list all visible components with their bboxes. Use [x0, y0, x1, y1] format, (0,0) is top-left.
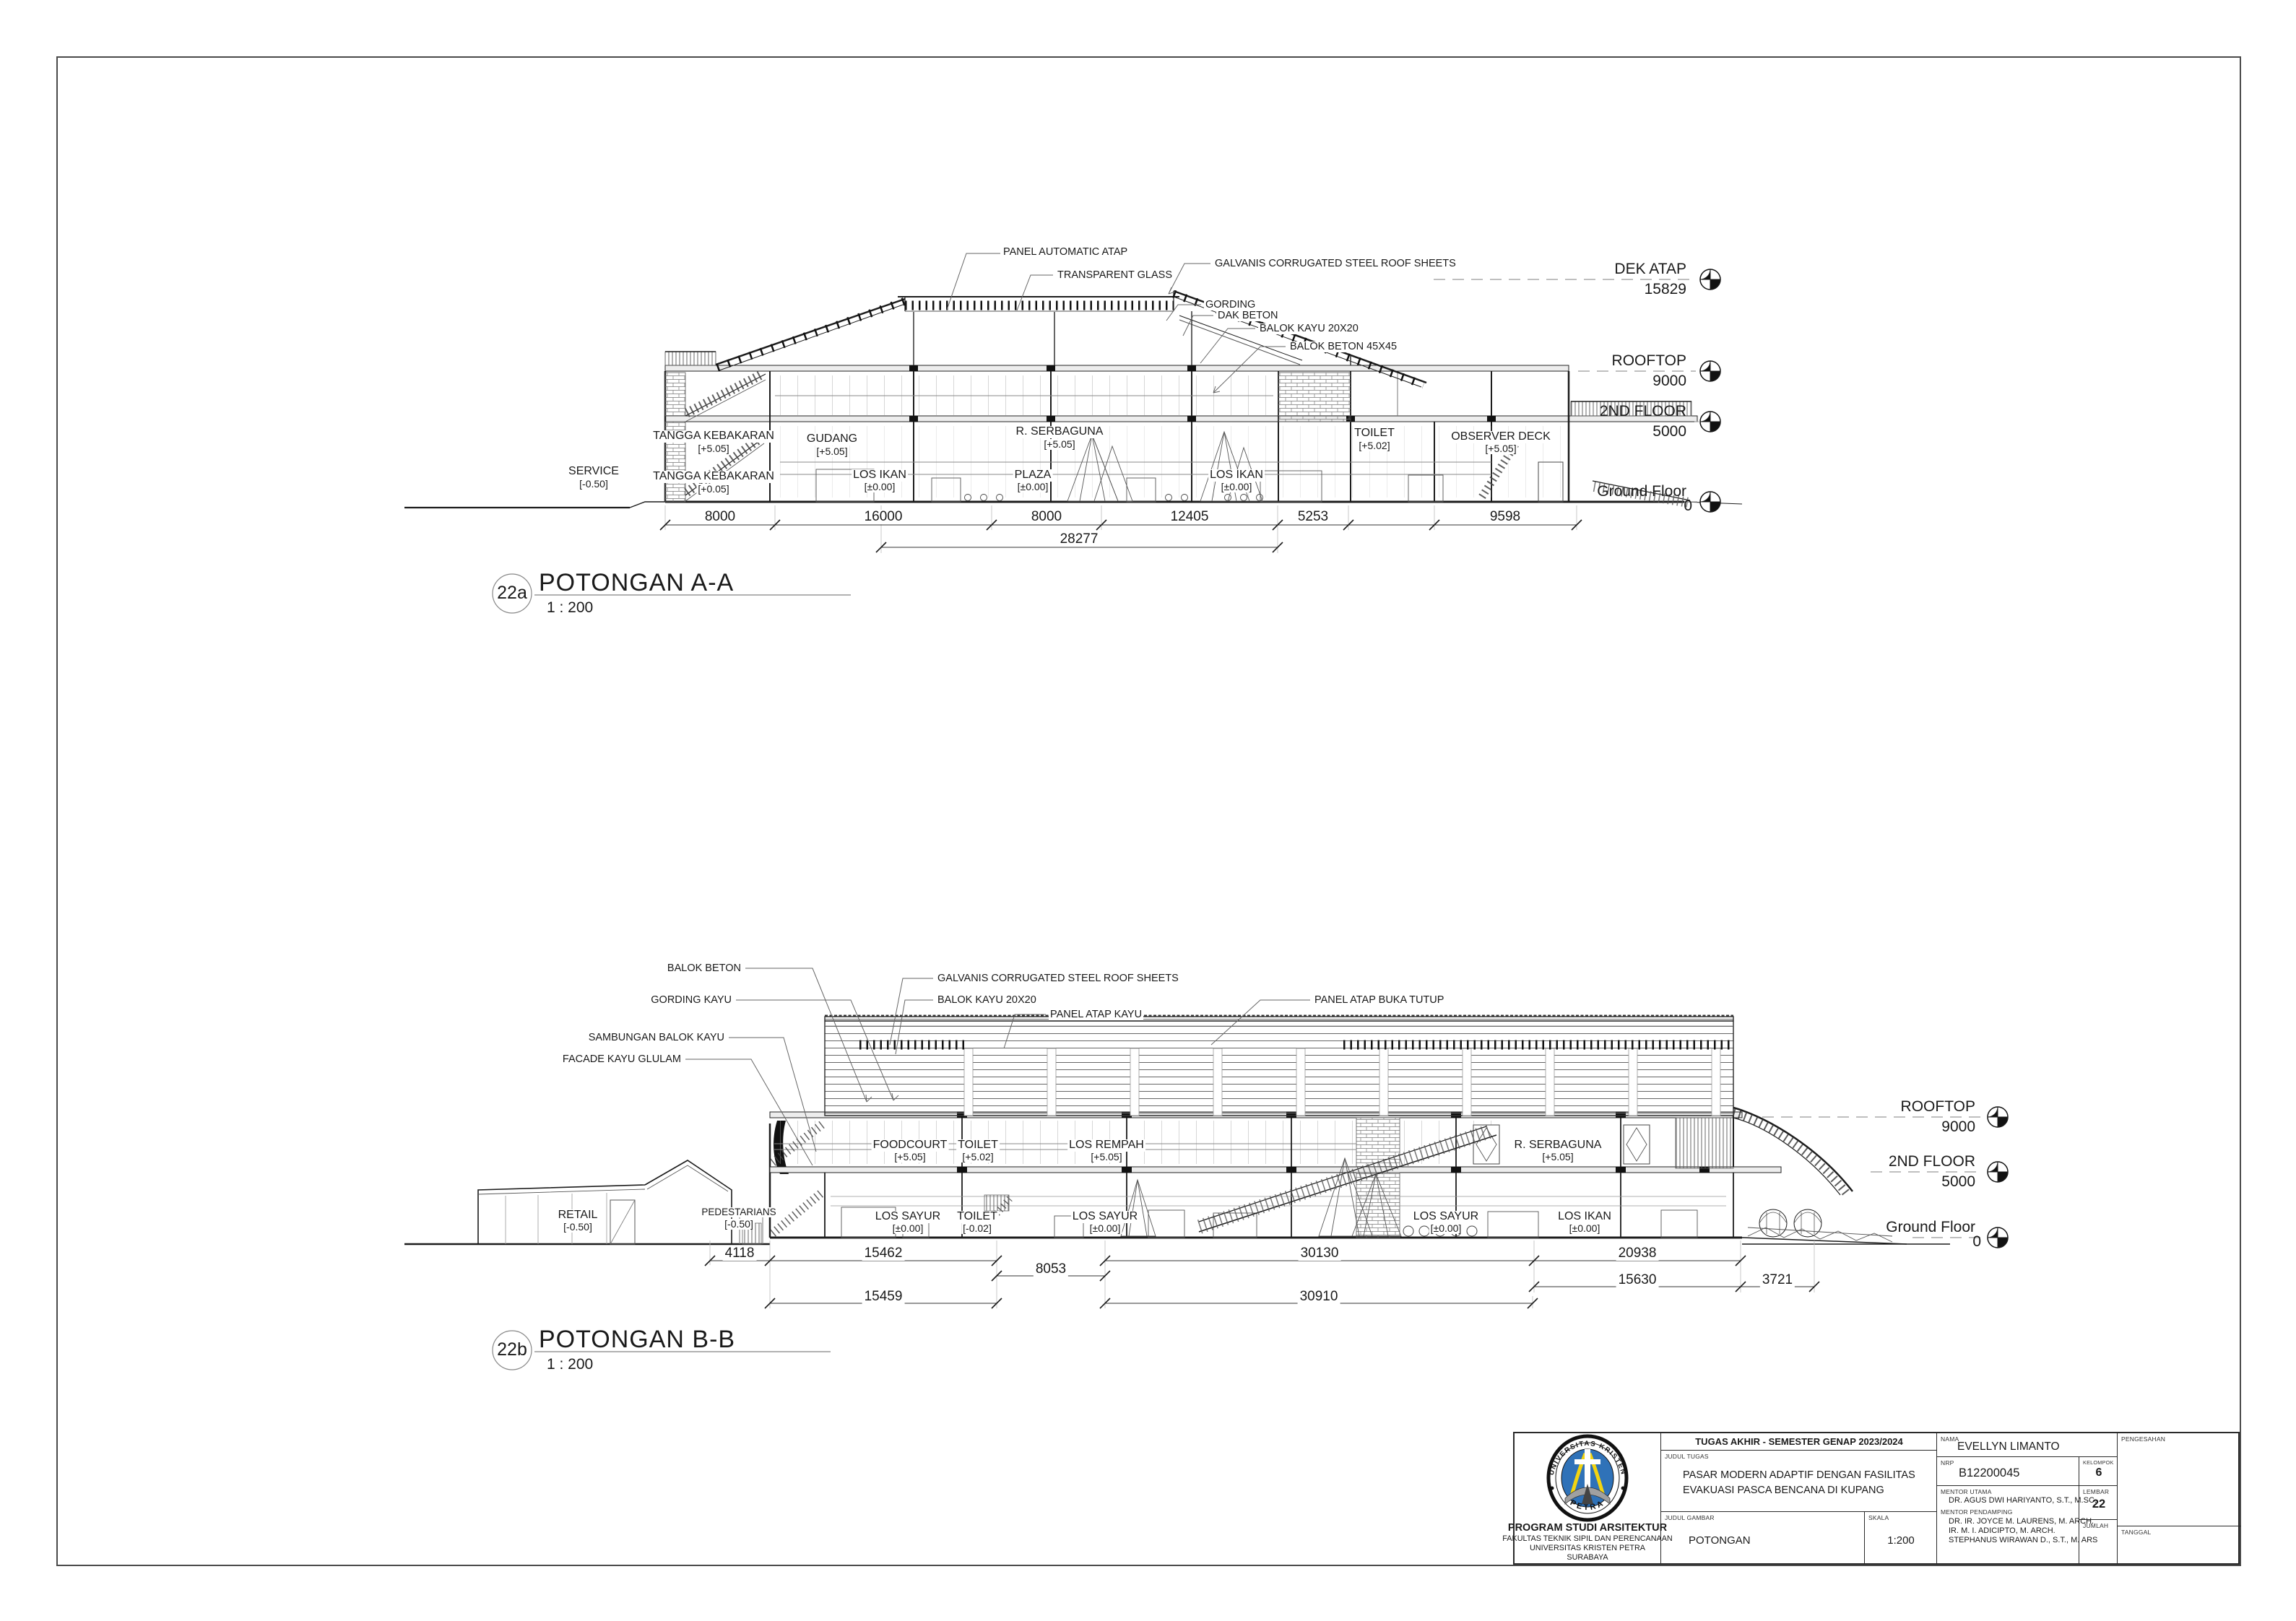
mentor-pendamping-3: STEPHANUS WIRAWAN D., S.T., M. ARS	[1949, 1537, 2097, 1545]
judul-gambar-label: JUDUL GAMBAR	[1665, 1514, 1715, 1521]
title-block-skala: SKALA 1:200	[1865, 1512, 1937, 1563]
drawing-title-bb: POTONGAN B-B	[539, 1327, 735, 1353]
title-block: UNIVERSITAS KRISTEN PETRA PROGRAM STUDI …	[1513, 1432, 2240, 1565]
nrp-value: B12200045	[1959, 1467, 2019, 1479]
room-level: [-0.02]	[961, 1223, 993, 1234]
title-block-nama: NAMA EVELLYN LIMANTO	[1937, 1433, 2118, 1457]
level-name: ROOFTOP	[1612, 353, 1686, 369]
callout-gording: GORDING	[1204, 300, 1257, 310]
level-name: Ground Floor	[1886, 1220, 1975, 1235]
title-block-institution: UNIVERSITAS KRISTEN PETRA PROGRAM STUDI …	[1515, 1433, 1661, 1563]
dim: 4118	[723, 1246, 757, 1261]
drawing-id-aa: 22a	[497, 583, 527, 602]
room-level: [+5.05]	[1483, 443, 1517, 454]
callout-balok-kayu: BALOK KAYU 20X20	[1258, 323, 1360, 334]
header-text: TUGAS AKHIR - SEMESTER GENAP 2023/2024	[1695, 1437, 1903, 1447]
judul-tugas-label: JUDUL TUGAS	[1665, 1453, 1709, 1460]
room-level: [+5.05]	[696, 443, 730, 454]
room-level: [+5.05]	[815, 446, 849, 457]
callout-galvanis-roof: GALVANIS CORRUGATED STEEL ROOF SHEETS	[936, 973, 1180, 984]
room-label: OBSERVER DECK	[1450, 431, 1552, 443]
callout-balok-beton-45: BALOK BETON 45X45	[1288, 342, 1398, 352]
title-block-tanggal: TANGGAL	[2118, 1526, 2241, 1563]
room-label: LOS REMPAH	[1067, 1139, 1145, 1152]
room-level: [+0.05]	[696, 484, 730, 495]
skala-label: SKALA	[1868, 1514, 1889, 1521]
dim: 3721	[1760, 1273, 1795, 1287]
mentor-pendamping-2: IR. M. I. ADICIPTO, M. ARCH.	[1949, 1527, 2055, 1536]
section-drawings-linework	[0, 0, 2296, 1621]
university-logo: UNIVERSITAS KRISTEN PETRA	[1515, 1433, 1661, 1524]
dim: 8000	[1029, 510, 1064, 524]
room-level: [-0.50]	[562, 1222, 594, 1233]
callout-transparent-glass: TRANSPARENT GLASS	[1056, 270, 1174, 281]
title-block-lembar: LEMBAR 22	[2079, 1486, 2118, 1519]
nama-value: EVELLYN LIMANTO	[1957, 1441, 2060, 1453]
level-value: 9000	[1941, 1119, 1975, 1135]
room-label: LOS IKAN	[1208, 469, 1265, 482]
room-level: [+5.05]	[1042, 439, 1076, 450]
kelompok-label: KELOMPOK	[2083, 1459, 2114, 1466]
drawing-scale-aa: 1 : 200	[547, 600, 593, 616]
level-value: 0	[1972, 1234, 1981, 1250]
mentor-pendamping-label: MENTOR PENDAMPING	[1941, 1508, 2013, 1516]
level-value: 5000	[1941, 1174, 1975, 1190]
drawing-sheet: PANEL AUTOMATIC ATAP TRANSPARENT GLASS G…	[0, 0, 2296, 1621]
level-value: 15829	[1645, 282, 1686, 297]
dim-total: 28277	[1058, 532, 1101, 547]
callout-galvanis-roof: GALVANIS CORRUGATED STEEL ROOF SHEETS	[1213, 258, 1457, 269]
title-block-judul-gambar: JUDUL GAMBAR POTONGAN	[1661, 1512, 1865, 1563]
room-label: TOILET	[1353, 427, 1396, 440]
dim: 15462	[862, 1246, 905, 1261]
room-level: [±0.00]	[891, 1223, 925, 1234]
level-name: Ground Floor	[1597, 484, 1686, 500]
room-label: LOS SAYUR	[1071, 1211, 1139, 1223]
pengesahan-label: PENGESAHAN	[2121, 1435, 2165, 1443]
room-level: [+5.02]	[1357, 440, 1391, 451]
room-label: SERVICE	[567, 466, 620, 478]
room-level: [+5.05]	[893, 1152, 927, 1162]
room-label: LOS SAYUR	[874, 1211, 942, 1223]
callout-gording-kayu: GORDING KAYU	[649, 995, 733, 1006]
callout-facade-glulam: FACADE KAYU GLULAM	[561, 1054, 683, 1065]
room-level: [+5.02]	[961, 1152, 995, 1162]
room-level: [±0.00]	[1220, 482, 1254, 492]
room-level: [±0.00]	[1088, 1223, 1122, 1234]
room-label: R. SERBAGUNA	[1513, 1139, 1603, 1152]
room-level: [±0.00]	[863, 482, 897, 492]
room-label: PEDESTARIANS	[700, 1207, 777, 1217]
room-level: [-0.50]	[723, 1219, 755, 1230]
dim: 12405	[1169, 510, 1211, 524]
title-block-jumlah: JUMLAH	[2079, 1519, 2118, 1563]
callout-dak-beton: DAK BETON	[1216, 310, 1280, 321]
dim: 5253	[1296, 510, 1330, 524]
jumlah-label: JUMLAH	[2083, 1522, 2108, 1529]
dim: 9598	[1488, 510, 1522, 524]
callout-balok-beton: BALOK BETON	[666, 963, 742, 974]
mentor-utama-value: DR. AGUS DWI HARIYANTO, S.T., M.SC.	[1949, 1497, 2097, 1505]
dim: 16000	[862, 510, 905, 524]
callout-balok-kayu: BALOK KAYU 20X20	[936, 995, 1038, 1006]
dim: 8000	[703, 510, 737, 524]
title-block-nrp: NRP B12200045	[1937, 1457, 2079, 1486]
mentor-pendamping-1: DR. IR. JOYCE M. LAURENS, M. ARCH.	[1949, 1518, 2094, 1526]
nama-label: NAMA	[1941, 1435, 1959, 1443]
judul-tugas-line2: EVAKUASI PASCA BENCANA DI KUPANG	[1683, 1485, 1884, 1496]
drawing-scale-bb: 1 : 200	[547, 1357, 593, 1373]
skala-value: 1:200	[1887, 1535, 1915, 1547]
kelompok-value: 6	[2096, 1467, 2102, 1479]
callout-panel-atap-kayu: PANEL ATAP KAYU	[1049, 1009, 1143, 1020]
lembar-value: 22	[2092, 1498, 2105, 1511]
drawing-id-bb: 22b	[497, 1340, 527, 1359]
nrp-label: NRP	[1941, 1459, 1954, 1466]
room-level: [+5.05]	[1089, 1152, 1123, 1162]
tanggal-label: TANGGAL	[2121, 1529, 2151, 1536]
callout-panel-atap-buka-tutup: PANEL ATAP BUKA TUTUP	[1313, 995, 1445, 1006]
room-level: [±0.00]	[1429, 1223, 1463, 1234]
room-label: R. SERBAGUNA	[1015, 426, 1105, 438]
room-label: RETAIL	[557, 1209, 599, 1222]
title-block-pengesahan: PENGESAHAN	[2118, 1433, 2241, 1526]
dim: 8053	[1034, 1262, 1068, 1277]
callout-sambungan-balok: SAMBUNGAN BALOK KAYU	[587, 1033, 726, 1043]
room-level: [±0.00]	[1568, 1223, 1602, 1234]
institution-faculty: FAKULTAS TEKNIK SIPIL DAN PERENCANAAN	[1502, 1535, 1672, 1543]
judul-tugas-line1: PASAR MODERN ADAPTIF DENGAN FASILITAS	[1683, 1470, 1915, 1481]
title-block-kelompok: KELOMPOK 6	[2079, 1457, 2118, 1486]
level-name: DEK ATAP	[1614, 261, 1686, 277]
room-label: TOILET	[956, 1211, 999, 1223]
title-block-header: TUGAS AKHIR - SEMESTER GENAP 2023/2024	[1661, 1433, 1937, 1451]
title-block-judul-tugas: JUDUL TUGAS PASAR MODERN ADAPTIF DENGAN …	[1661, 1451, 1937, 1512]
level-name: 2ND FLOOR	[1889, 1154, 1975, 1170]
level-value: 5000	[1652, 424, 1686, 440]
room-level: [-0.50]	[578, 479, 610, 490]
level-name: 2ND FLOOR	[1600, 404, 1686, 420]
dim: 30130	[1299, 1246, 1341, 1261]
dim: 30910	[1298, 1290, 1340, 1304]
room-label: LOS IKAN	[852, 469, 908, 482]
level-value: 9000	[1652, 373, 1686, 389]
room-label: TOILET	[956, 1139, 1000, 1152]
dim: 20938	[1616, 1246, 1659, 1261]
room-level: [+5.05]	[1541, 1152, 1574, 1162]
mentor-utama-label: MENTOR UTAMA	[1941, 1488, 1992, 1495]
dim: 15630	[1616, 1273, 1659, 1287]
judul-gambar-value: POTONGAN	[1689, 1535, 1751, 1547]
lembar-label: LEMBAR	[2083, 1488, 2109, 1495]
room-label: GUDANG	[805, 433, 859, 446]
callout-panel-automatic-atap: PANEL AUTOMATIC ATAP	[1002, 247, 1129, 258]
institution-name: PROGRAM STUDI ARSITEKTUR	[1508, 1523, 1667, 1534]
title-block-mentor: MENTOR UTAMA DR. AGUS DWI HARIYANTO, S.T…	[1937, 1486, 2079, 1563]
room-label: TANGGA KEBAKARAN	[651, 471, 776, 483]
level-value: 0	[1684, 498, 1692, 514]
room-label: TANGGA KEBAKARAN	[651, 430, 776, 443]
room-label: LOS IKAN	[1556, 1211, 1613, 1223]
room-label: PLAZA	[1013, 469, 1053, 482]
room-label: LOS SAYUR	[1412, 1211, 1480, 1223]
institution-city: SURABAYA	[1567, 1554, 1608, 1562]
level-name: ROOFTOP	[1901, 1099, 1975, 1115]
dim: 15459	[862, 1290, 905, 1304]
drawing-title-aa: POTONGAN A-A	[539, 570, 734, 596]
institution-university: UNIVERSITAS KRISTEN PETRA	[1530, 1544, 1645, 1552]
room-label: FOODCOURT	[872, 1139, 949, 1152]
room-level: [±0.00]	[1016, 482, 1050, 492]
